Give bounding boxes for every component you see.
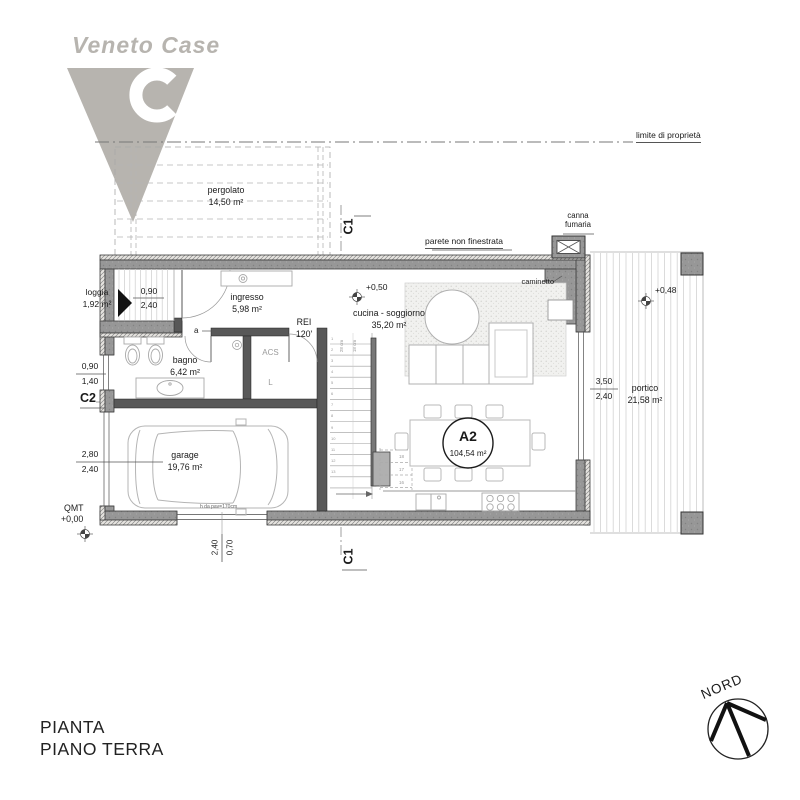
chimney bbox=[552, 236, 585, 258]
dim-gwin-h: 0,70 bbox=[225, 531, 234, 565]
dim-garage-h: 2,40 bbox=[75, 464, 105, 476]
blind-wall-note: parete non finestrata bbox=[425, 236, 503, 249]
pergolato-label: pergolato14,50 m² bbox=[176, 185, 276, 208]
north-compass bbox=[708, 699, 768, 759]
fireplace-box bbox=[548, 300, 573, 320]
stair-number-16: 16 bbox=[399, 480, 404, 485]
dim-entrance-w: 0,90 bbox=[134, 286, 164, 298]
benchmark-ground bbox=[77, 526, 93, 542]
stair-number: 1 bbox=[331, 337, 333, 341]
room-label-cucina: cucina - soggiorno35,20 m² bbox=[344, 308, 434, 331]
stair-number-18: 18 bbox=[399, 454, 404, 459]
stair-numbers: 12345678910111213 bbox=[331, 337, 341, 497]
stair-number: 3 bbox=[331, 359, 333, 363]
laundry-label: L bbox=[252, 377, 289, 389]
stair-number: 13 bbox=[331, 470, 335, 474]
stair-number: 11 bbox=[331, 448, 335, 452]
dim-gwin-w: 2,40 bbox=[210, 531, 219, 565]
section-marker-c1-bottom: C1 bbox=[344, 544, 357, 570]
unit-area: 104,54 m² bbox=[440, 448, 496, 460]
dim-entrance-h: 2,40 bbox=[134, 300, 164, 312]
stair-note-riser: 18 cm bbox=[352, 333, 358, 359]
section-marker-c2: C2 bbox=[80, 393, 96, 405]
door-a-label: a bbox=[194, 325, 198, 337]
stair-number: 8 bbox=[331, 414, 333, 418]
dim-bath-h: 1,40 bbox=[75, 376, 105, 388]
logo-mark bbox=[67, 68, 194, 222]
room-label-garage: garage19,76 m² bbox=[150, 450, 220, 473]
unit-code: A2 bbox=[443, 431, 493, 443]
stair-number: 4 bbox=[331, 370, 333, 374]
stair-number-17: 17 bbox=[399, 467, 404, 472]
floor-plan-sheet: Veneto Case limite di proprietà pergolat… bbox=[0, 0, 800, 800]
stair-number: 10 bbox=[331, 437, 335, 441]
qmt-label: QMT bbox=[64, 503, 84, 515]
sheet-title-line2: PIANO TERRA bbox=[40, 744, 164, 756]
portico-pillar bbox=[681, 512, 703, 534]
room-label-portico: portico21,58 m² bbox=[615, 383, 675, 406]
entry-cabinet bbox=[221, 271, 292, 286]
stair-number: 9 bbox=[331, 426, 333, 430]
interior-walls bbox=[114, 318, 327, 511]
dim-bath-w: 0,90 bbox=[75, 361, 105, 373]
kitchen-counter bbox=[383, 491, 576, 511]
dim-portico-w: 3,50 bbox=[591, 376, 617, 388]
dim-portico-h: 2,40 bbox=[591, 391, 617, 403]
garage-window-note: h da pav=170cm bbox=[200, 504, 237, 510]
floor-plan-drawing bbox=[0, 0, 800, 800]
section-marker-c1-top: C1 bbox=[344, 214, 357, 240]
stair-number: 5 bbox=[331, 381, 333, 385]
dim-garage-w: 2,80 bbox=[75, 449, 105, 461]
chimney-label: cannafumaria bbox=[556, 211, 600, 229]
stair-number: 2 bbox=[331, 348, 333, 352]
sheet-title-line1: PIANTA bbox=[40, 722, 105, 734]
logo-text: Veneto Case bbox=[72, 40, 220, 52]
level-ground: +0,00 bbox=[61, 514, 83, 526]
level-portico: +0,48 bbox=[655, 285, 677, 297]
fireplace-label: caminetto bbox=[512, 276, 554, 288]
benchmark-living bbox=[349, 289, 365, 305]
level-living: +0,50 bbox=[366, 282, 388, 294]
room-label-loggia: loggia1,92 m² bbox=[72, 287, 122, 310]
stair-number: 7 bbox=[331, 403, 333, 407]
room-label-ingresso: ingresso5,98 m² bbox=[212, 292, 282, 315]
fire-door-label: REI120' bbox=[288, 317, 320, 340]
stair-number: 6 bbox=[331, 392, 333, 396]
room-label-bagno: bagno6,42 m² bbox=[160, 355, 210, 378]
stair-number: 12 bbox=[331, 459, 335, 463]
acs-label: ACS bbox=[252, 347, 289, 359]
portico-pillar bbox=[681, 253, 703, 275]
property-line-label: limite di proprietà bbox=[636, 130, 701, 143]
